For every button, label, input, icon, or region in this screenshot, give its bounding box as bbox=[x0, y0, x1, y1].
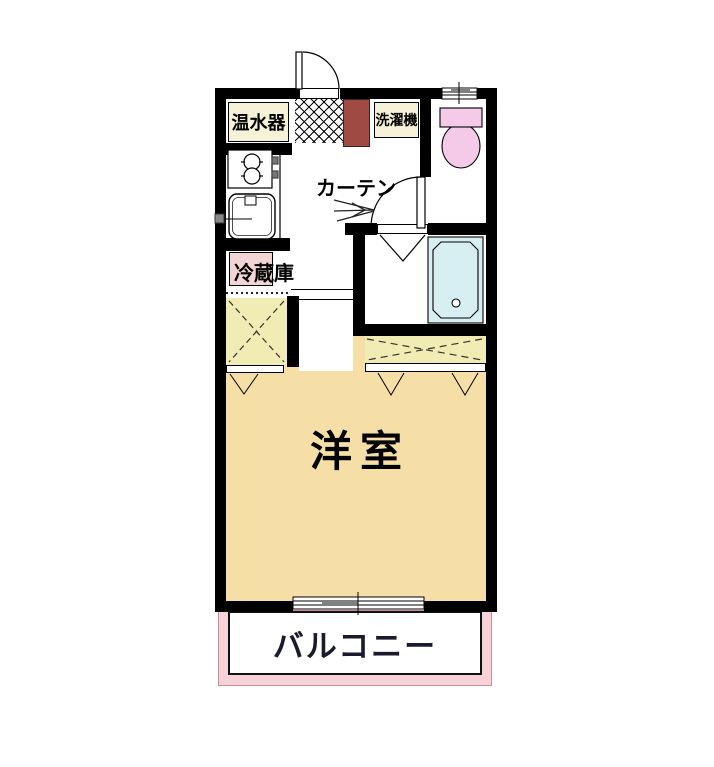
washing-machine-text: 洗濯機 bbox=[376, 110, 418, 130]
main-room-label: 洋室 bbox=[302, 418, 410, 479]
wall-kitchen-top bbox=[215, 143, 292, 155]
closet-right-door bbox=[365, 363, 486, 372]
balcony: バルコニー bbox=[218, 610, 492, 686]
water-heater-label: 温水器 bbox=[228, 102, 289, 142]
washing-machine-label: 洗濯機 bbox=[374, 102, 419, 138]
hallway-floor bbox=[299, 296, 353, 371]
water-heater-text: 温水器 bbox=[232, 109, 286, 135]
curtain-arrow-icon bbox=[334, 200, 374, 221]
partition-dotted-band bbox=[226, 289, 291, 298]
shoe-cabinet bbox=[343, 99, 370, 147]
curtain-label: カーテン bbox=[316, 172, 396, 201]
toilet-icon bbox=[440, 108, 482, 168]
refrigerator-label: 冷蔵庫 bbox=[234, 257, 294, 286]
bathroom-folding-door bbox=[377, 224, 428, 234]
outer-wall-left bbox=[215, 88, 226, 612]
entrance-tile bbox=[295, 99, 343, 143]
entrance-door-icon bbox=[296, 52, 339, 89]
floor-plan: 洋室 バルコニー 温水器 洗濯機 冷蔵庫 カーテン bbox=[0, 0, 714, 767]
wall-bathroom-bottom bbox=[353, 324, 486, 336]
outer-wall-right bbox=[486, 88, 497, 612]
partition-rail-band bbox=[291, 289, 358, 300]
closet-right bbox=[365, 336, 486, 363]
wall-closet-divider bbox=[287, 296, 299, 367]
wall-below-sink bbox=[215, 238, 290, 251]
stove-icon bbox=[228, 150, 278, 188]
closet-left bbox=[226, 298, 287, 365]
wall-bathroom-left bbox=[353, 225, 365, 336]
outer-wall-bottom-right bbox=[424, 601, 497, 612]
bathroom-floor bbox=[365, 235, 486, 324]
outer-wall-top-left bbox=[215, 88, 300, 99]
balcony-inner: バルコニー bbox=[228, 611, 482, 675]
closet-left-door bbox=[226, 365, 284, 373]
outer-wall-bottom-left bbox=[215, 601, 293, 612]
balcony-label: バルコニー bbox=[273, 621, 437, 666]
wall-toilet-left bbox=[420, 88, 431, 177]
toilet-window-icon bbox=[442, 82, 477, 104]
entrance-threshold bbox=[299, 88, 339, 99]
wall-washroom-top-right bbox=[428, 223, 486, 235]
